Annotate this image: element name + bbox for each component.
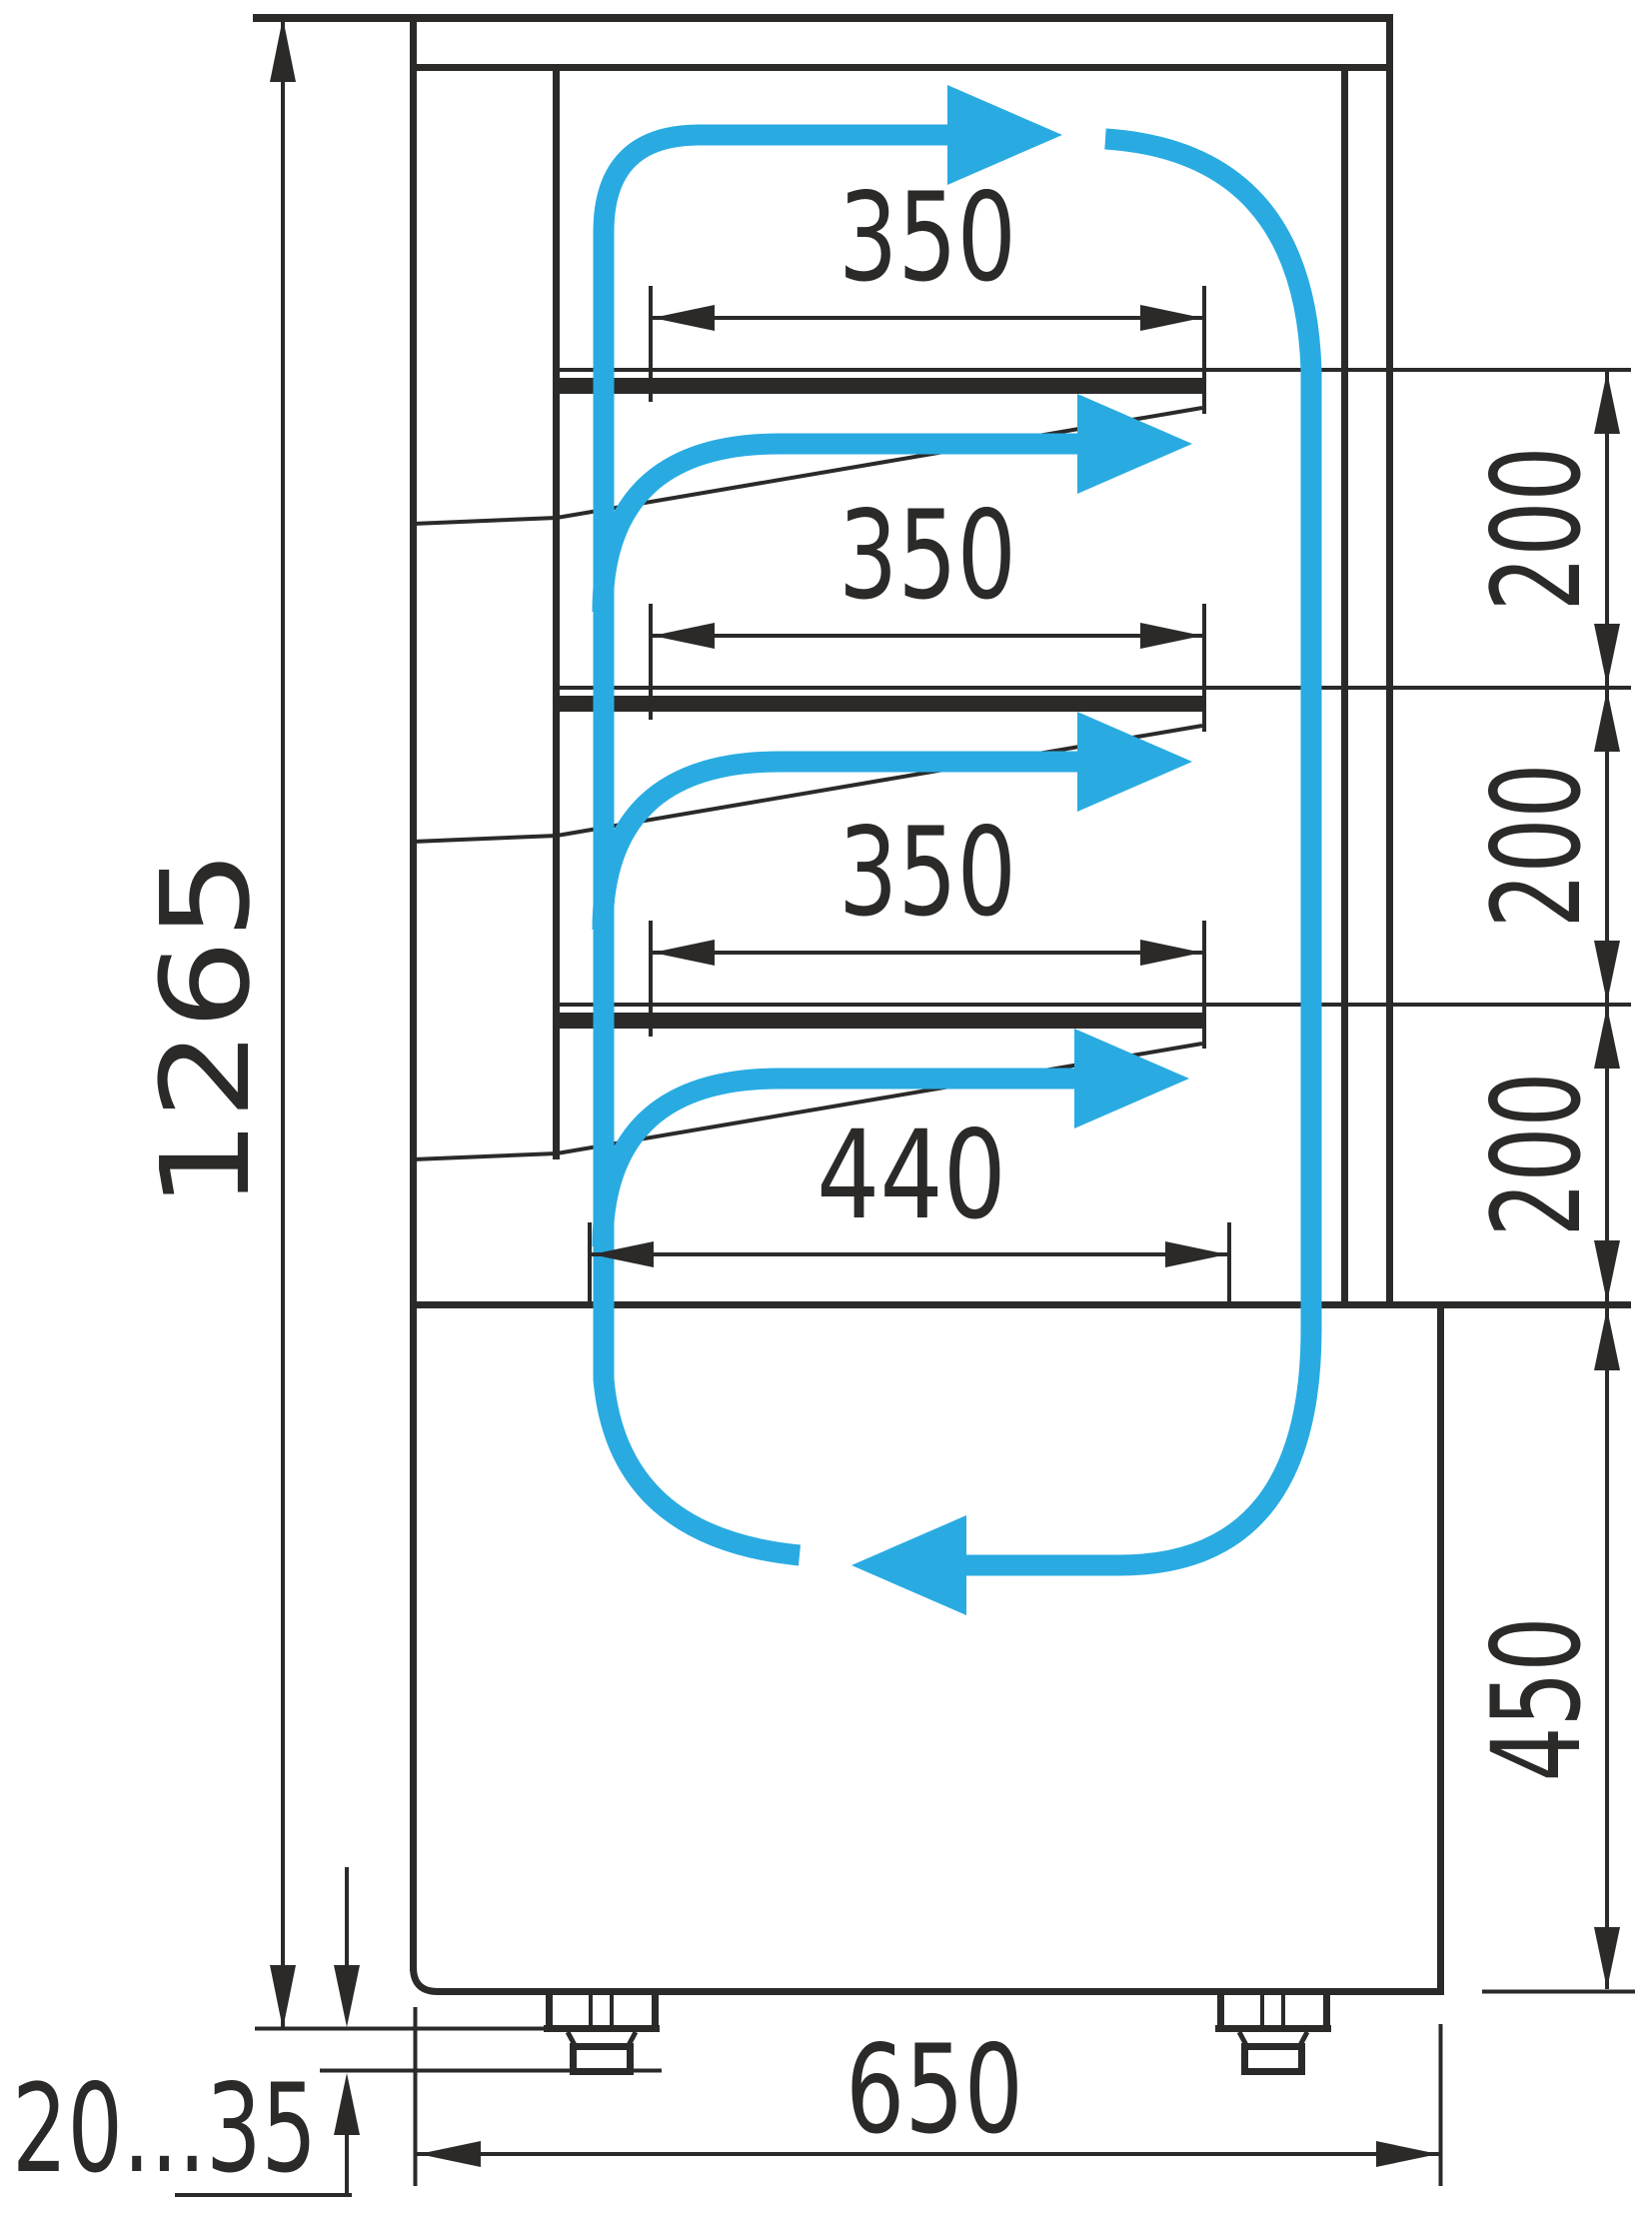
right-leg bbox=[1215, 1995, 1331, 2072]
right-leg-screw bbox=[1262, 1995, 1283, 2027]
spacing2-label: 200 bbox=[1466, 764, 1608, 929]
dim-height-arrow-up-icon bbox=[270, 18, 296, 82]
airflow-return-arrow-icon bbox=[851, 1515, 966, 1615]
spacing1-label: 200 bbox=[1466, 447, 1608, 612]
base-height-label: 450 bbox=[1466, 1617, 1608, 1782]
left-leg-screw bbox=[591, 1995, 612, 2027]
right-leg-foot bbox=[1245, 2047, 1302, 2072]
technical-drawing-canvas: 1265 350 350 350 440 200 200 200 450 650… bbox=[0, 0, 1652, 2214]
bottom-deck-depth-label: 440 bbox=[817, 1105, 1006, 1246]
spacing3-label: 200 bbox=[1466, 1073, 1608, 1237]
overall-depth-label: 650 bbox=[845, 2019, 1023, 2161]
dim-height-arrow-down-icon bbox=[270, 1965, 296, 2029]
airflow-shelf1-arrow-icon bbox=[1077, 394, 1192, 494]
left-leg bbox=[544, 1995, 660, 2072]
overall-height-label: 1265 bbox=[135, 850, 277, 1209]
foot-adjustment-label: 20...35 bbox=[12, 2058, 317, 2200]
dimension-labels: 1265 350 350 350 440 200 200 200 450 650… bbox=[12, 167, 1608, 2200]
airflow-descender-path bbox=[966, 139, 1311, 1565]
display-case-section-diagram: 1265 350 350 350 440 200 200 200 450 650… bbox=[0, 0, 1652, 2214]
shelf1-depth-label: 350 bbox=[838, 167, 1016, 309]
airflow-shelf3-arrow-icon bbox=[1074, 1029, 1189, 1128]
shelf3-depth-label: 350 bbox=[838, 802, 1016, 944]
airflow-shelf2-arrow-icon bbox=[1077, 712, 1192, 812]
cabinet-structure bbox=[253, 14, 1631, 1995]
left-leg-foot bbox=[574, 2047, 631, 2072]
base-bottom-line bbox=[414, 1967, 1445, 1992]
shelf2-depth-label: 350 bbox=[838, 485, 1016, 627]
